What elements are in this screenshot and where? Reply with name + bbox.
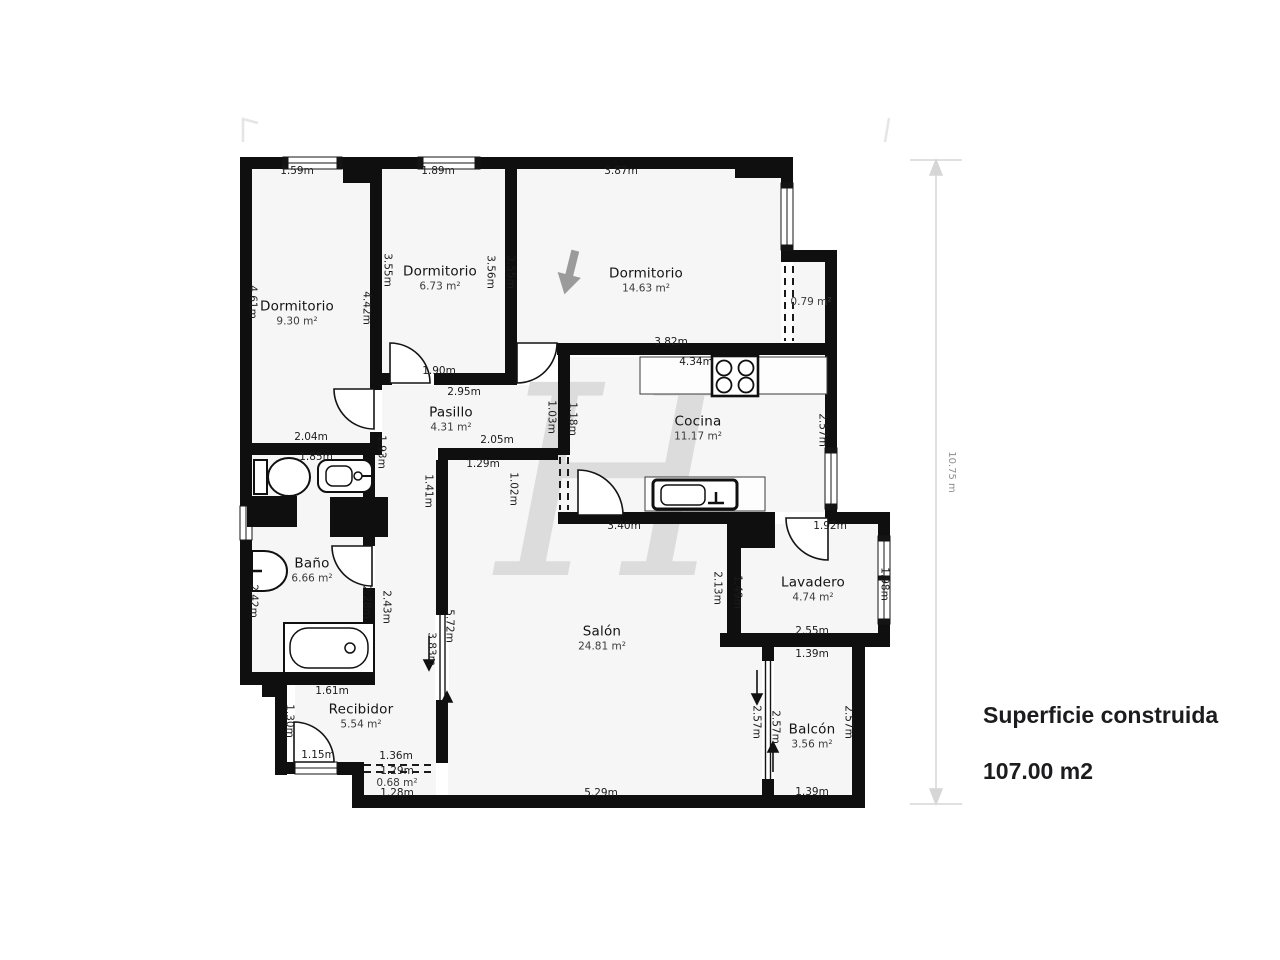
bidet-icon xyxy=(318,460,372,492)
room-label-pasillo: Pasillo 4.31 m² xyxy=(429,405,473,434)
dim-label: 2.95m xyxy=(447,387,481,398)
kitchen-sink-icon xyxy=(645,477,765,511)
dim-label: 2.57m xyxy=(817,413,828,447)
room-label-salon: Salón 24.81 m² xyxy=(578,624,626,653)
dim-label: 1.30m xyxy=(284,704,295,738)
dim-label: 1.18m xyxy=(567,402,578,436)
dim-label: 2.42m xyxy=(248,584,259,618)
room-label-dorm3: Dormitorio 14.63 m² xyxy=(609,266,683,295)
dim-label: 1.03m xyxy=(546,400,557,434)
dim-label: 1.59m xyxy=(280,166,314,177)
dim-label: 3.56m xyxy=(485,255,496,289)
dim-label: 1.39m xyxy=(795,787,829,798)
dim-label: 4.42m xyxy=(361,291,372,325)
dim-label: 1.90m xyxy=(422,366,456,377)
dim-label: 1.28m xyxy=(380,788,414,799)
room-label-recibidor: Recibidor 5.54 m² xyxy=(329,702,394,731)
dim-label: 1.36m xyxy=(379,751,413,762)
summary-title: Superficie construida xyxy=(983,702,1218,729)
dim-label: 3.40m xyxy=(607,521,641,532)
dim-label: 4.61m xyxy=(247,285,258,319)
dim-label: 1.29m xyxy=(380,766,414,777)
dim-label: 1.92m xyxy=(813,521,847,532)
stove-icon xyxy=(712,356,758,396)
dim-label: 1.61m xyxy=(315,686,349,697)
dim-label: 2.57m xyxy=(751,705,762,739)
dim-label: 1.49m xyxy=(732,575,743,609)
dim-label: 3.87m xyxy=(604,166,638,177)
summary-value: 107.00 m2 xyxy=(983,758,1218,785)
dim-label: 1.39m xyxy=(795,649,829,660)
scale-label: 10.75 m xyxy=(946,451,956,493)
dim-label: 2.13m xyxy=(712,571,723,605)
room-label-cocina: Cocina 11.17 m² xyxy=(674,414,722,443)
dim-label: 1.29m xyxy=(466,459,500,470)
dim-label: 2.05m xyxy=(480,435,514,446)
dim-label: 1.15m xyxy=(301,750,335,761)
room-label-dorm1: Dormitorio 9.30 m² xyxy=(260,299,334,328)
dim-label: 2.57m xyxy=(770,710,781,744)
dim-label: 5.29m xyxy=(584,788,618,799)
floor-plan-svg: H xyxy=(0,0,1280,960)
dim-label: 2.43m xyxy=(381,590,392,624)
dim-label: 4.34m xyxy=(679,357,713,368)
dim-label: 3.55m xyxy=(505,255,516,289)
summary-block: Superficie construida 107.00 m2 xyxy=(983,702,1218,785)
dim-label: 2.04m xyxy=(294,432,328,443)
dim-label: 3.55m xyxy=(382,253,393,287)
crop-marks xyxy=(243,118,889,142)
room-label-balcon: Balcón 3.56 m² xyxy=(789,722,836,751)
dim-label: 1.98m xyxy=(879,567,890,601)
room-label-dorm2: Dormitorio 6.73 m² xyxy=(403,264,477,293)
dim-label: 2.57m xyxy=(843,705,854,739)
floor-plan-canvas: H xyxy=(0,0,1280,960)
dim-label: 1.89m xyxy=(421,166,455,177)
dim-label: 3.83m xyxy=(426,632,437,666)
toilet-icon xyxy=(254,458,310,496)
dim-label: 3.82m xyxy=(654,337,688,348)
room-label-closet1: 0.79 m² xyxy=(790,296,831,308)
room-label-lavadero: Lavadero 4.74 m² xyxy=(781,575,845,604)
dim-label: 2.28m xyxy=(361,585,372,619)
dim-label: 5.72m xyxy=(444,609,455,643)
dim-label: 1.02m xyxy=(508,472,519,506)
dim-label: 2.55m xyxy=(795,626,829,637)
dim-label: 1.85m xyxy=(299,452,333,463)
room-label-bano: Baño 6.66 m² xyxy=(291,556,332,585)
dim-label: 1.93m xyxy=(376,435,387,469)
bathtub-icon xyxy=(284,623,374,673)
dim-label: 1.41m xyxy=(423,474,434,508)
